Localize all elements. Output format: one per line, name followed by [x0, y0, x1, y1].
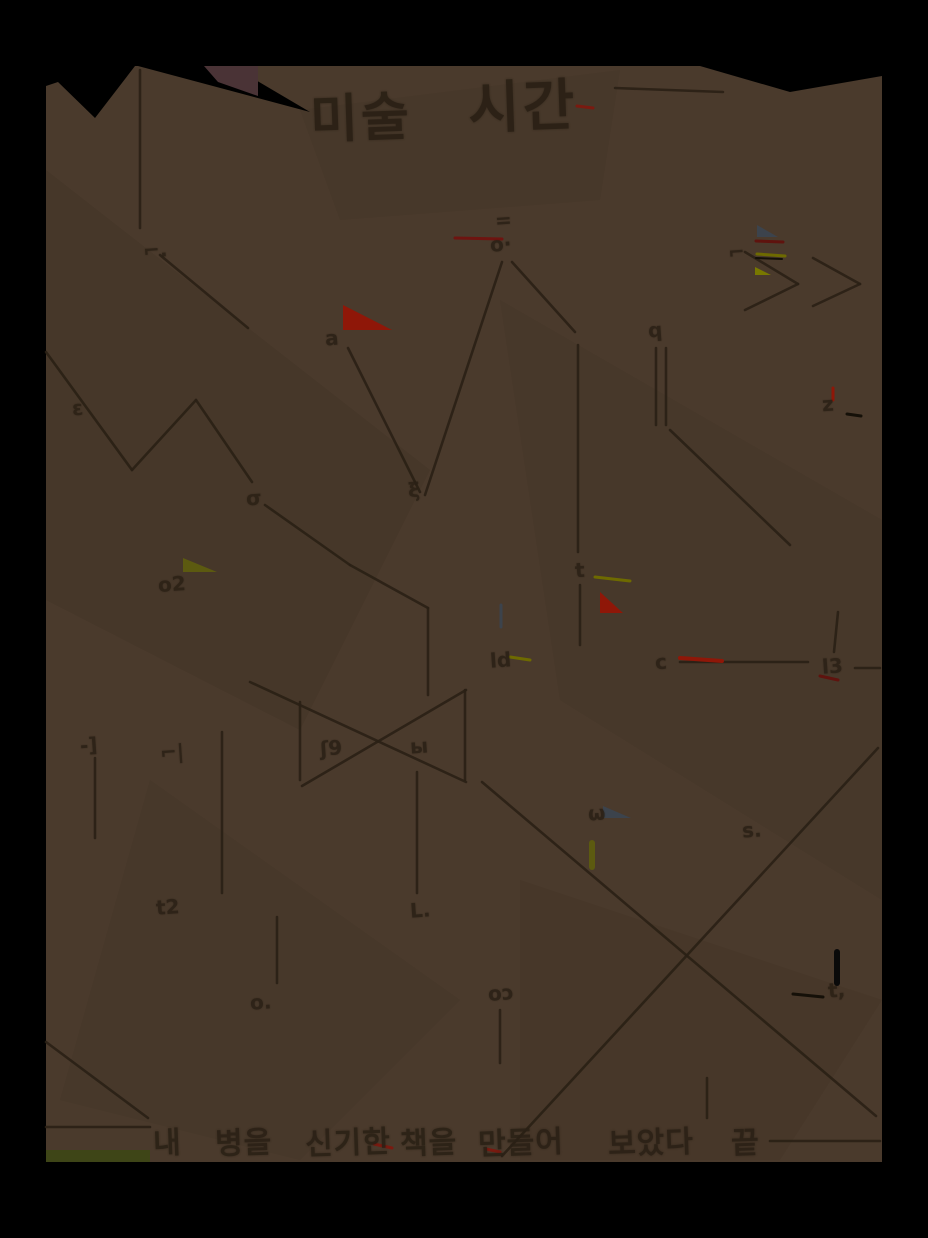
scribble-label: L. — [409, 897, 431, 922]
scribble-label: l3 — [821, 653, 843, 678]
scribble-label: ω — [587, 800, 606, 825]
photo-of-handwritten-page: 미술 시간 내병을신기한책을만들어보았다끝 ⌐.=o·⌐aqεzσξo2tldc… — [0, 0, 928, 1238]
scribble-label: ⌐| — [159, 739, 185, 765]
scribble-label: ε — [71, 396, 84, 421]
scribble-label: t — [574, 558, 585, 583]
scribble-label: ξ — [407, 478, 420, 503]
scribble-label: -] — [79, 732, 98, 757]
handwritten-caption-word: 병을 — [214, 1117, 273, 1163]
handwritten-caption-word: 끝 — [730, 1118, 760, 1163]
scribble-label: o· — [489, 231, 512, 256]
pen-accent — [46, 1150, 150, 1162]
pen-accent — [757, 254, 785, 256]
handwritten-caption-word: 신기한 — [304, 1117, 391, 1164]
handwritten-caption-word: 내 — [152, 1118, 182, 1163]
scribble-label: ʃ9 — [319, 735, 343, 760]
scribble-label: = — [494, 207, 512, 232]
handwritten-caption-word: 책을 — [399, 1117, 458, 1163]
pen-accent — [847, 414, 861, 416]
scribble-label: t, — [827, 977, 846, 1002]
pen-accent — [577, 106, 593, 108]
handwritten-title-word-1: 미술 — [309, 74, 413, 153]
scribble-label: o. — [249, 989, 272, 1014]
scribble-label: oɔ — [487, 980, 514, 1006]
scribble-label: c — [654, 650, 668, 675]
handwritten-title-word-2: 시간 — [467, 60, 579, 145]
scribble-label: ⌐. — [142, 237, 168, 263]
page-drawing — [0, 0, 928, 1238]
scribble-label: ⌐ — [727, 239, 745, 264]
scribble-label: σ — [245, 485, 262, 510]
scribble-label: ld — [489, 647, 512, 672]
scribble-label: a — [324, 326, 339, 351]
scribble-label: o2 — [157, 571, 186, 597]
pen-accent — [756, 258, 782, 259]
scribble-label: s. — [741, 817, 762, 842]
scribble-label: q — [647, 318, 663, 343]
scribble-label: ы — [409, 733, 429, 758]
pen-accent — [756, 241, 783, 242]
scribble-label: t2 — [155, 894, 180, 920]
handwritten-caption-word: 만들어 — [477, 1117, 564, 1164]
handwritten-caption-word: 보았다 — [607, 1117, 694, 1164]
scribble-label: z — [821, 392, 834, 417]
